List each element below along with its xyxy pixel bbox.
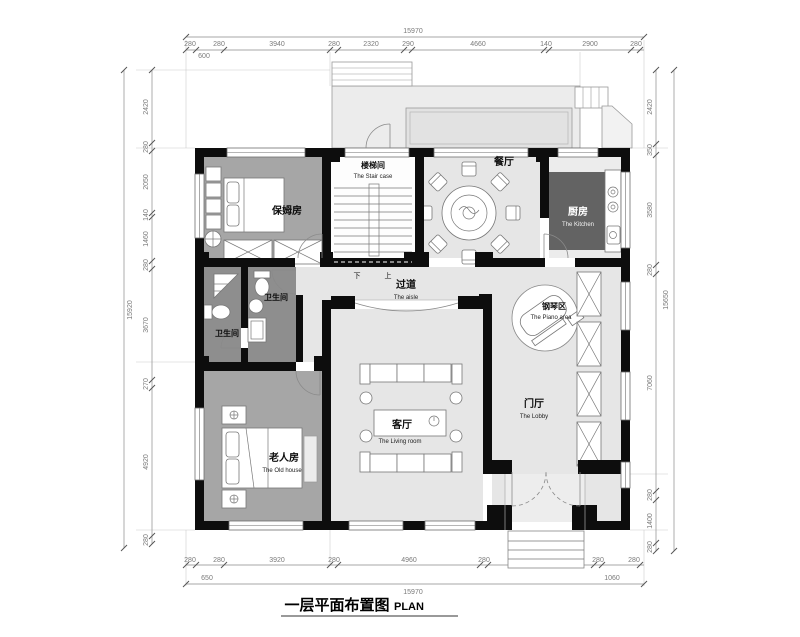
dim-top-total: 15970	[403, 28, 423, 35]
kitchen-sink	[607, 226, 620, 244]
dim-label: 280	[143, 534, 150, 546]
dim-label: 1400	[647, 513, 654, 529]
label-bath-b: 卫生间	[215, 328, 239, 338]
floor-plan-canvas: 15970 280 280 3940 280 2320 290 4660 140…	[0, 0, 800, 637]
dim-label: 2050	[143, 174, 150, 190]
dim-label: 140	[143, 209, 150, 221]
dim-label: 280	[647, 489, 654, 501]
label-old-room-en: The Old house	[262, 468, 302, 474]
terrace-steps	[575, 87, 608, 108]
label-lobby: 门厅	[524, 397, 544, 410]
dim-label: 4960	[401, 557, 417, 564]
stair-up-mark: 上	[385, 271, 392, 280]
dim-label: 2420	[143, 99, 150, 115]
floor-plan-page: 15970 280 280 3940 280 2320 290 4660 140…	[0, 0, 800, 637]
label-aisle-en: The aisle	[394, 295, 419, 301]
dim-label: 280	[328, 557, 340, 564]
dim-label: 290	[402, 41, 414, 48]
dim-bottom-total: 15970	[403, 589, 423, 596]
dim-label: 280	[630, 41, 642, 48]
terrace	[332, 62, 632, 148]
dim-label: 280	[647, 264, 654, 276]
dining-chair	[462, 162, 476, 176]
dimension-top: 15970 280 280 3940 280 2320 290 4660 140…	[183, 28, 647, 60]
dim-label: 270	[143, 378, 150, 390]
label-stair: 楼梯间	[361, 160, 385, 170]
label-dining: 餐厅	[493, 155, 514, 168]
dim-label: 2420	[647, 99, 654, 115]
dim-label-offset: 650	[201, 575, 213, 582]
dim-label: 280	[143, 259, 150, 271]
dim-label: 280	[213, 41, 225, 48]
dim-label: 350	[647, 144, 654, 156]
dim-right-total: 15650	[663, 290, 670, 310]
label-living-en: The Living room	[378, 439, 421, 445]
dim-label: 280	[478, 557, 490, 564]
drawing-title-en: PLAN	[394, 601, 424, 613]
dim-label: 4920	[143, 454, 150, 470]
label-kitchen-en: The Kitchen	[562, 222, 594, 228]
label-stair-en: The Stair case	[354, 174, 393, 180]
label-lobby-en: The Lobby	[520, 414, 548, 420]
toilet-tank	[254, 271, 270, 278]
toilet-tank	[204, 305, 212, 319]
label-nanny: 保姆房	[271, 204, 302, 217]
dim-label: 280	[184, 557, 196, 564]
dimension-left: 15920 2420 280 2050 140 1460 280 3670 27…	[121, 67, 155, 551]
dim-label: 2320	[363, 41, 379, 48]
dim-label: 280	[184, 41, 196, 48]
dim-label: 140	[540, 41, 552, 48]
label-piano: 钢琴区	[542, 301, 566, 311]
dim-label: 3920	[269, 557, 285, 564]
dim-label-offset: 1060	[604, 575, 620, 582]
dim-label: 4660	[470, 41, 486, 48]
dim-label: 280	[143, 141, 150, 153]
dim-label: 1460	[143, 231, 150, 247]
dim-label-offset: 600	[198, 53, 210, 60]
label-aisle: 过道	[396, 278, 416, 291]
bed-bench	[304, 436, 317, 482]
dining-table	[442, 186, 496, 240]
basin	[249, 299, 263, 313]
label-kitchen: 厨房	[568, 205, 588, 218]
toilet	[212, 305, 230, 319]
label-old-room: 老人房	[268, 451, 299, 464]
stair-down-mark: 下	[354, 272, 361, 280]
dim-label: 3670	[143, 317, 150, 333]
dim-label: 2900	[582, 41, 598, 48]
label-piano-en: The Piano area	[530, 315, 572, 321]
dim-label: 280	[328, 41, 340, 48]
aisle-floor	[296, 267, 483, 300]
dim-label: 280	[647, 541, 654, 553]
dim-label: 280	[628, 557, 640, 564]
dim-label: 280	[213, 557, 225, 564]
dim-label: 280	[592, 557, 604, 564]
dim-label: 3940	[269, 41, 285, 48]
label-bath-a: 卫生间	[264, 292, 288, 302]
bath-a-floor	[248, 267, 296, 362]
terrace-corner	[602, 106, 632, 148]
dim-label: 7060	[647, 375, 654, 391]
dim-label: 3580	[647, 202, 654, 218]
drawing-title: 一层平面布置图	[284, 596, 389, 614]
dim-left-total: 15920	[127, 300, 134, 320]
label-living: 客厅	[391, 418, 412, 431]
dimension-right: 15650 2420 350 3580 280 7060 280 1400 28…	[647, 67, 677, 554]
